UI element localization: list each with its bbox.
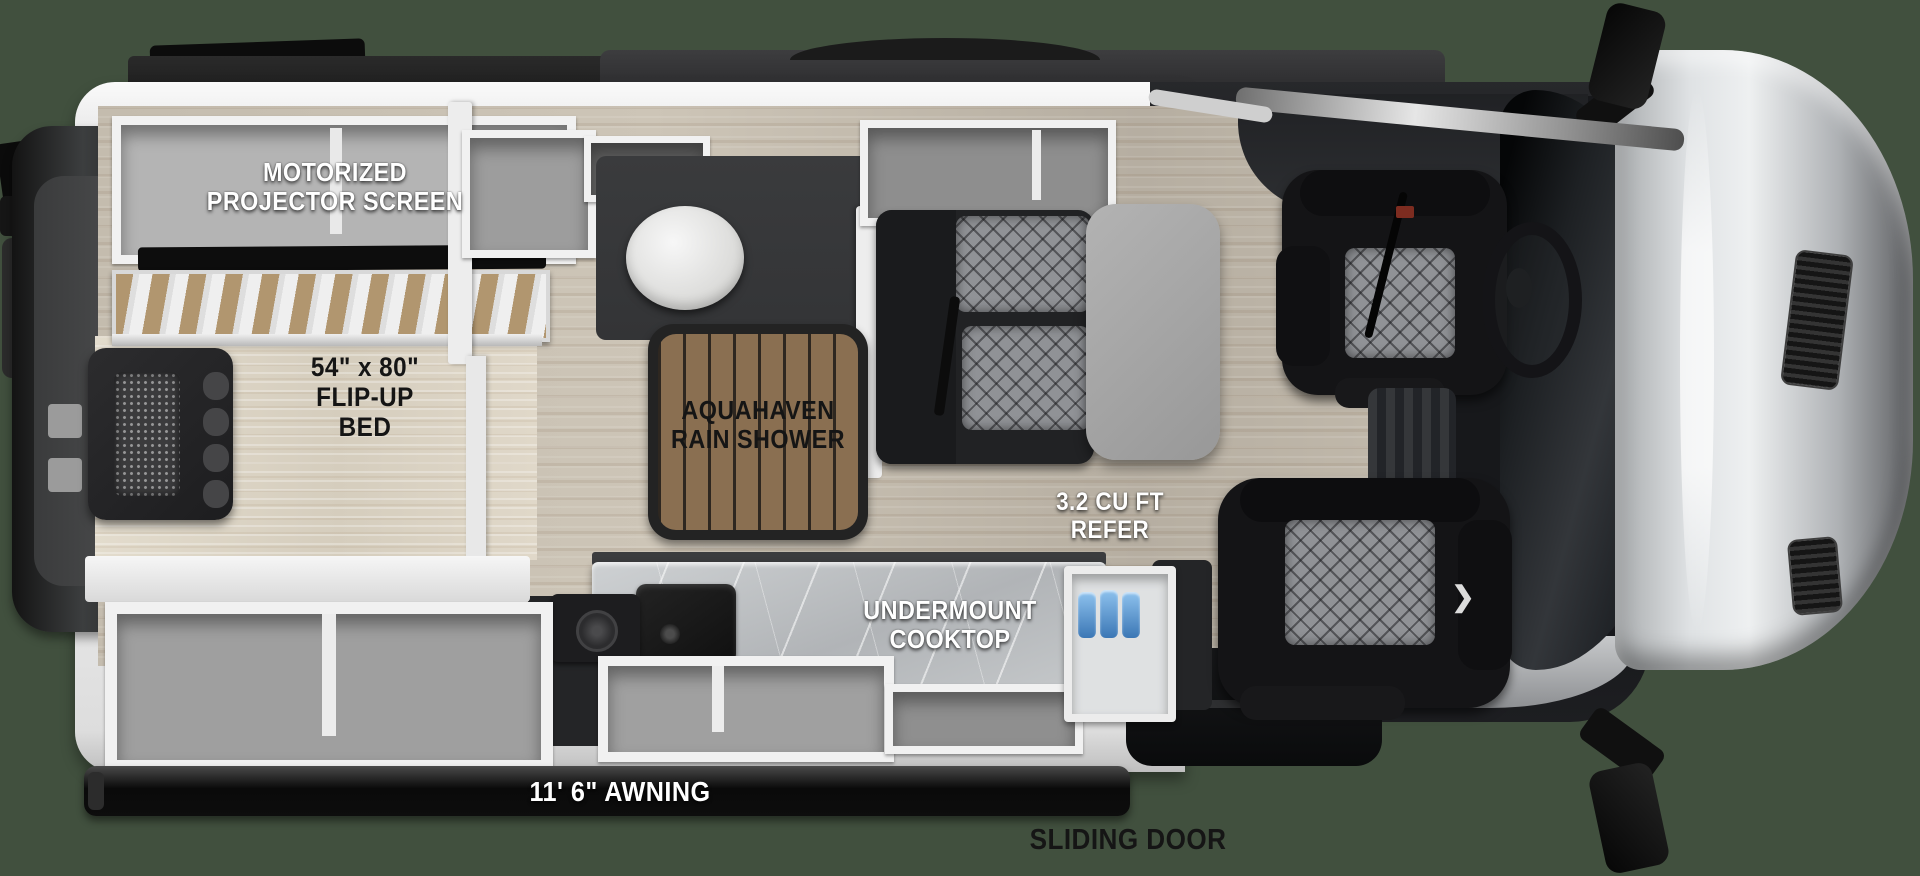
driver-seat-cushion	[1345, 248, 1455, 358]
seatbelt-buckle-icon	[1396, 206, 1414, 218]
brand-chevron-icon: ❯	[1448, 580, 1478, 614]
projector-grille-icon	[114, 372, 180, 496]
water-bottle-icon	[1122, 592, 1140, 638]
hood-vent-icon	[1787, 536, 1843, 616]
projector-screen-label-line2: PROJECTOR SCREEN	[173, 187, 497, 216]
toilet	[626, 206, 744, 310]
cooktop-label: UNDERMOUNT COOKTOP	[824, 596, 1076, 654]
refer-label-line1: 3.2 CU FT	[1002, 488, 1218, 516]
flip-up-bed-label: 54" x 80" FLIP-UP BED	[230, 352, 500, 443]
rear-door-latch	[48, 404, 82, 438]
water-bottle-icon	[1100, 590, 1118, 638]
steering-wheel-icon	[1482, 222, 1582, 378]
dinette-cushion	[962, 326, 1090, 430]
bed-slats	[112, 270, 550, 342]
hood-highlight	[1680, 90, 1714, 630]
under-counter-tray	[885, 684, 1083, 754]
projector-screen-label-line1: MOTORIZED	[173, 158, 497, 187]
steering-hub-icon	[1506, 268, 1532, 308]
projector-knob-icon	[203, 408, 229, 436]
flip-up-bed-label-line2: FLIP-UP	[230, 382, 500, 412]
passenger-seat-cushion	[1285, 520, 1435, 645]
awning-label-text: 11' 6" AWNING	[467, 776, 773, 807]
shelf-divider	[712, 666, 724, 732]
under-counter-shelf	[598, 656, 894, 762]
heater-fan-icon	[576, 610, 618, 652]
driver-seat-headrest	[1276, 246, 1330, 366]
rv-floorplan: ❯ MOTORIZED PROJECTOR SCREEN 54" x 80" F…	[0, 0, 1920, 871]
projector-knob-icon	[203, 480, 229, 508]
sliding-door-label: SLIDING DOOR	[993, 824, 1263, 856]
dinette-cushion	[956, 216, 1090, 312]
refer-label: 3.2 CU FT REFER	[1002, 488, 1218, 544]
rain-shower-label: AQUAHAVEN RAIN SHOWER	[632, 396, 884, 454]
bed-bench-front	[85, 556, 530, 602]
flip-up-bed-label-line3: BED	[230, 412, 500, 442]
rain-shower-label-line1: AQUAHAVEN	[632, 396, 884, 425]
shelf-divider	[322, 614, 336, 736]
awning-label: 11' 6" AWNING	[467, 776, 773, 807]
bed-slat-rail	[112, 334, 542, 346]
cooktop-label-line2: COOKTOP	[824, 625, 1076, 654]
sliding-door-label-text: SLIDING DOOR	[993, 824, 1263, 856]
rain-shower-label-line2: RAIN SHOWER	[632, 425, 884, 454]
awning-end-cap	[88, 772, 104, 810]
side-mirror-icon	[1587, 760, 1671, 875]
rear-door-latch	[48, 458, 82, 492]
flip-up-bed-label-line1: 54" x 80"	[230, 352, 500, 382]
projector-knob-icon	[203, 444, 229, 472]
sink-drain-icon	[660, 624, 680, 644]
roof-strip	[790, 38, 1100, 60]
passenger-seat-armrest	[1240, 686, 1405, 720]
fridge	[1064, 566, 1176, 722]
cooktop-label-line1: UNDERMOUNT	[824, 596, 1076, 625]
passenger-seat-bolster	[1240, 478, 1480, 522]
projector-knob-icon	[203, 372, 229, 400]
water-bottle-icon	[1078, 592, 1096, 638]
projector-screen-label: MOTORIZED PROJECTOR SCREEN	[173, 158, 497, 216]
refer-label-line2: REFER	[1002, 516, 1218, 544]
kitchen-sink	[636, 584, 736, 664]
cabinet-divider	[1032, 130, 1041, 200]
dinette-table	[1086, 204, 1220, 460]
